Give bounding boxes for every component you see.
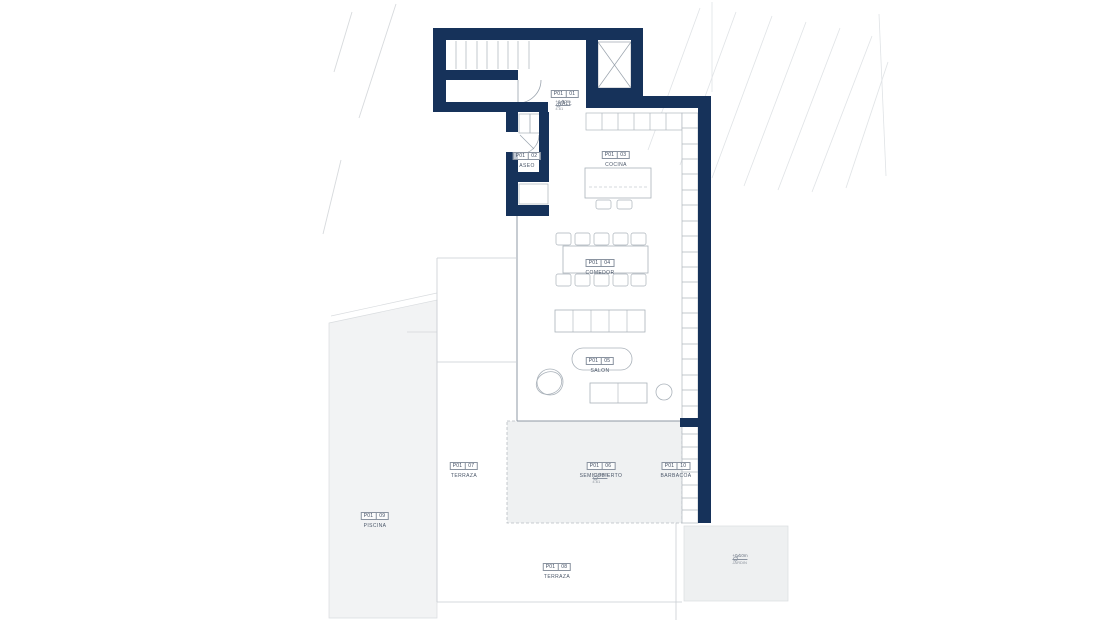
sofa bbox=[555, 310, 645, 332]
floorplan-canvas: P0101 HALL P0102 ASEO P0103 COCINA P0104… bbox=[0, 0, 1110, 626]
tv-bench bbox=[590, 383, 647, 403]
island-stools bbox=[596, 200, 632, 209]
wall-segment bbox=[586, 96, 711, 108]
dining-table bbox=[563, 246, 648, 273]
wall-segment bbox=[680, 418, 702, 427]
wall-segment bbox=[586, 40, 598, 96]
armchair bbox=[533, 368, 566, 399]
hall-closet bbox=[519, 184, 548, 204]
plan-linework bbox=[0, 0, 1110, 626]
aseo-sink bbox=[519, 114, 541, 133]
wall-segment bbox=[506, 205, 549, 216]
kitchen-side-counter-grid bbox=[682, 113, 698, 421]
hall-door-arc bbox=[518, 80, 541, 103]
elevator-shaft bbox=[598, 42, 631, 88]
side-table bbox=[656, 384, 672, 400]
wall-segment bbox=[539, 112, 549, 174]
stairs bbox=[456, 41, 529, 69]
kitchen-counter-grid bbox=[586, 113, 682, 130]
wall-segment bbox=[506, 172, 549, 182]
wall-segment bbox=[433, 28, 643, 40]
site-boundary-lines bbox=[323, 4, 396, 234]
pool-area bbox=[329, 293, 437, 618]
wall-segment bbox=[506, 102, 518, 132]
aseo-door-arc bbox=[520, 135, 539, 154]
semicubierto-outline bbox=[507, 421, 682, 523]
wall-segment bbox=[433, 102, 548, 112]
wall-segment bbox=[631, 40, 643, 96]
wall-segment bbox=[433, 28, 446, 112]
wall-segment bbox=[446, 70, 518, 80]
wall-segment bbox=[698, 108, 711, 523]
coffee-table bbox=[572, 348, 632, 370]
garden-pad bbox=[684, 526, 788, 601]
barbacoa-grid bbox=[682, 421, 698, 523]
kitchen-island bbox=[585, 168, 651, 198]
